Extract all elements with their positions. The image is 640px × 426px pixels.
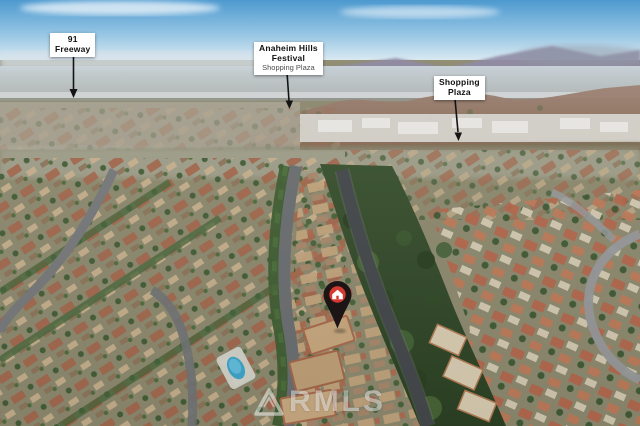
label-91-freeway: 91 Freeway — [50, 33, 95, 57]
label-festival-title: Anaheim Hills Festival — [259, 44, 318, 63]
arrow-to-freeway — [66, 55, 81, 99]
label-festival-subtitle: Shopping Plaza — [259, 63, 318, 72]
label-91-freeway-title: 91 Freeway — [55, 35, 90, 54]
arrow-to-shopping-plaza — [448, 99, 466, 142]
label-shopping-plaza: Shopping Plaza — [434, 76, 485, 100]
label-anaheim-hills-festival: Anaheim Hills Festival Shopping Plaza — [254, 42, 323, 75]
aerial-photo: 91 Freeway Anaheim Hills Festival Shoppi… — [0, 0, 640, 426]
property-location-pin[interactable] — [319, 280, 356, 330]
label-shopping-plaza-title: Shopping Plaza — [439, 78, 480, 97]
arrow-to-festival-plaza — [280, 72, 296, 110]
